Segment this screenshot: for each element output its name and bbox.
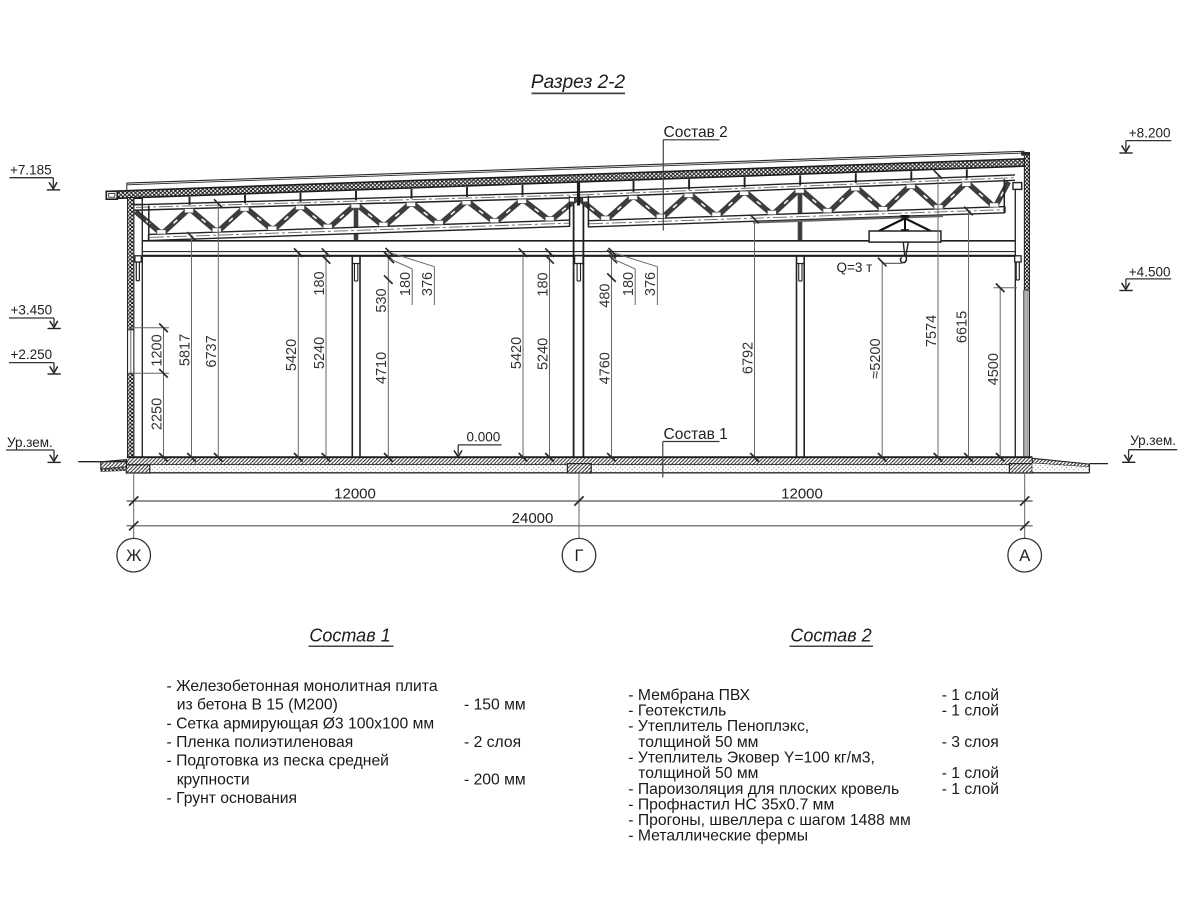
- svg-text:+8.200: +8.200: [1129, 125, 1171, 140]
- svg-text:6615: 6615: [954, 311, 970, 343]
- svg-text:2250: 2250: [149, 398, 165, 430]
- svg-text:+7.185: +7.185: [10, 163, 52, 178]
- svg-text:Ур.зем.: Ур.зем.: [7, 435, 53, 450]
- svg-text:- 1 слой: - 1 слой: [942, 703, 999, 720]
- svg-text:- Утеплитель Пеноплэкс,: - Утеплитель Пеноплэкс,: [628, 718, 809, 735]
- svg-text:1200: 1200: [149, 334, 165, 366]
- svg-text:- Геотекстиль: - Геотекстиль: [628, 703, 726, 720]
- svg-text:Состав 2: Состав 2: [664, 124, 728, 141]
- svg-text:Разрез 2-2: Разрез 2-2: [531, 72, 626, 93]
- svg-text:- Железобетонная монолитная п: - Железобетонная монолитная плита: [167, 678, 438, 695]
- svg-text:4710: 4710: [374, 352, 390, 384]
- svg-text:530: 530: [374, 288, 390, 312]
- svg-text:Q=3 т: Q=3 т: [837, 260, 873, 275]
- svg-text:- Мембрана ПВХ: - Мембрана ПВХ: [628, 687, 750, 704]
- svg-text:- Пароизоляция для плоских кро: - Пароизоляция для плоских кровель: [628, 781, 899, 798]
- svg-text:≈5200: ≈5200: [868, 338, 884, 378]
- svg-text:- 2 слоя: - 2 слоя: [464, 734, 521, 751]
- svg-text:5817: 5817: [177, 334, 193, 366]
- svg-text:+2.250: +2.250: [11, 347, 53, 362]
- svg-text:6792: 6792: [740, 342, 756, 374]
- svg-text:- Сетка армирующая Ø3 100х100: - Сетка армирующая Ø3 100х100 мм: [167, 715, 435, 732]
- svg-text:Состав 1: Состав 1: [309, 626, 390, 646]
- svg-text:Ж: Ж: [126, 547, 142, 565]
- svg-text:Состав 1: Состав 1: [664, 426, 728, 443]
- svg-text:180: 180: [535, 272, 551, 296]
- svg-text:7574: 7574: [924, 315, 940, 347]
- svg-text:180: 180: [621, 272, 637, 296]
- svg-text:- Пленка полиэтиленовая: - Пленка полиэтиленовая: [167, 734, 354, 751]
- svg-text:- 3 слоя: - 3 слоя: [942, 734, 999, 751]
- svg-text:- 1 слой: - 1 слой: [942, 687, 999, 704]
- svg-text:6737: 6737: [204, 335, 220, 367]
- svg-text:376: 376: [643, 272, 659, 296]
- svg-text:180: 180: [398, 272, 414, 296]
- svg-text:5240: 5240: [535, 338, 551, 370]
- svg-text:4760: 4760: [597, 352, 613, 384]
- svg-text:из бетона В 15 (М200): из бетона В 15 (М200): [177, 697, 338, 714]
- svg-text:Г: Г: [575, 547, 584, 565]
- svg-text:- 200 мм: - 200 мм: [464, 771, 526, 788]
- svg-text:А: А: [1019, 547, 1030, 565]
- svg-text:Ур.зем.: Ур.зем.: [1130, 433, 1176, 448]
- svg-text:толщиной 50 мм: толщиной 50 мм: [638, 765, 758, 782]
- svg-text:- Прогоны, швеллера с шагом 14: - Прогоны, швеллера с шагом 1488 мм: [628, 812, 910, 829]
- svg-text:+3.450: +3.450: [11, 302, 53, 317]
- svg-text:5420: 5420: [284, 339, 300, 371]
- svg-text:24000: 24000: [512, 510, 554, 527]
- svg-text:- 150 мм: - 150 мм: [464, 697, 526, 714]
- svg-text:0.000: 0.000: [467, 430, 501, 445]
- svg-text:376: 376: [420, 272, 436, 296]
- svg-text:- Утеплитель Эковер Y=100 кг/м: - Утеплитель Эковер Y=100 кг/м3,: [628, 750, 875, 767]
- svg-text:толщиной 50 мм: толщиной 50 мм: [638, 734, 758, 751]
- svg-text:крупности: крупности: [177, 771, 250, 788]
- svg-text:12000: 12000: [334, 485, 376, 502]
- svg-text:- 1 слой: - 1 слой: [942, 781, 999, 798]
- svg-text:Состав 2: Состав 2: [790, 626, 871, 646]
- svg-text:180: 180: [312, 271, 328, 295]
- svg-text:- Металлические фермы: - Металлические фермы: [628, 828, 808, 845]
- svg-text:480: 480: [597, 283, 613, 307]
- svg-text:+4.500: +4.500: [1129, 265, 1171, 280]
- svg-text:12000: 12000: [781, 485, 823, 502]
- svg-text:- Грунт основания: - Грунт основания: [167, 790, 298, 807]
- svg-text:- Подготовка из песка средней: - Подготовка из песка средней: [167, 753, 389, 770]
- svg-text:5240: 5240: [312, 337, 328, 369]
- svg-text:- 1 слой: - 1 слой: [942, 765, 999, 782]
- svg-text:4500: 4500: [986, 353, 1002, 385]
- svg-text:- Профнастил НС 35х0.7 мм: - Профнастил НС 35х0.7 мм: [628, 796, 834, 813]
- svg-text:5420: 5420: [509, 337, 525, 369]
